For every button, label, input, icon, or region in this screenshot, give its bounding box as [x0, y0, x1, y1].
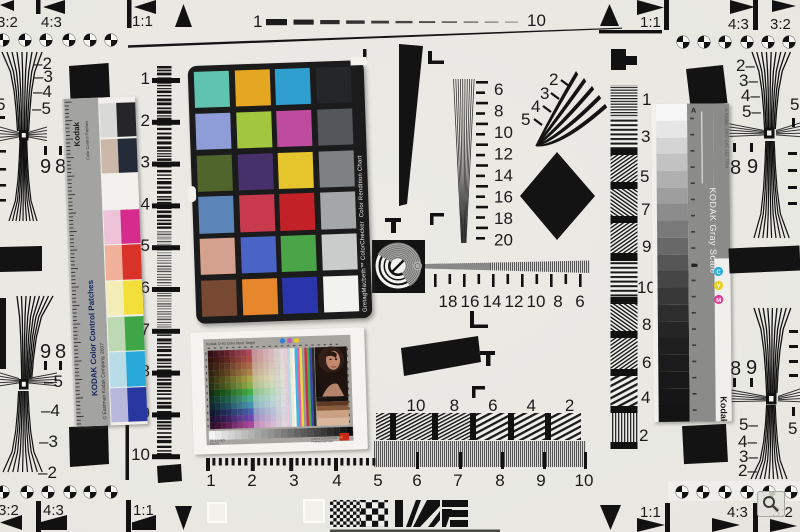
- svg-text:3:2: 3:2: [0, 502, 19, 519]
- svg-text:5: 5: [0, 95, 5, 114]
- svg-text:1: 1: [141, 69, 150, 88]
- svg-text:4: 4: [641, 388, 650, 407]
- svg-text:3: 3: [289, 471, 298, 490]
- svg-text:14: 14: [483, 292, 502, 311]
- svg-text:9: 9: [642, 237, 651, 256]
- svg-text:8: 8: [730, 358, 741, 380]
- svg-text:3: 3: [641, 127, 650, 146]
- svg-text:5–: 5–: [742, 102, 761, 121]
- svg-text:3:2: 3:2: [0, 14, 18, 31]
- svg-text:KODAK Gray Scale: KODAK Gray Scale: [708, 187, 719, 274]
- svg-text:–2: –2: [38, 463, 57, 482]
- svg-text:6: 6: [642, 353, 651, 372]
- svg-text:8: 8: [642, 315, 651, 334]
- svg-text:4: 4: [141, 194, 150, 213]
- svg-text:8: 8: [450, 396, 459, 415]
- svg-text:4: 4: [332, 471, 341, 490]
- svg-text:12: 12: [505, 292, 524, 311]
- svg-text:8: 8: [553, 292, 562, 311]
- svg-text:© Eastman Kodak Company, 2007: © Eastman Kodak Company, 2007: [98, 343, 108, 420]
- svg-text:9: 9: [536, 471, 545, 490]
- svg-text:5: 5: [521, 110, 530, 129]
- svg-text:10: 10: [407, 396, 426, 415]
- svg-text:9: 9: [746, 357, 757, 379]
- svg-text:2: 2: [141, 111, 150, 130]
- svg-text:16: 16: [494, 188, 513, 207]
- svg-text:1:1: 1:1: [133, 502, 154, 519]
- svg-text:5: 5: [788, 419, 797, 438]
- svg-text:M: M: [716, 298, 721, 304]
- svg-text:4: 4: [526, 396, 535, 415]
- svg-text:4:3: 4:3: [727, 504, 748, 521]
- svg-text:9: 9: [747, 156, 758, 178]
- svg-text:1:1: 1:1: [132, 13, 153, 30]
- svg-text:2: 2: [247, 471, 256, 490]
- svg-text:Professional Paper: Professional Paper: [312, 439, 334, 444]
- svg-text:9: 9: [40, 156, 51, 178]
- svg-text:5: 5: [640, 167, 649, 186]
- svg-text:7: 7: [641, 200, 650, 219]
- svg-text:5: 5: [790, 95, 799, 114]
- svg-text:14: 14: [494, 166, 513, 185]
- svg-text:2–: 2–: [738, 461, 757, 480]
- svg-text:–4: –4: [41, 401, 60, 420]
- svg-text:3: 3: [141, 153, 150, 172]
- svg-text:9: 9: [40, 341, 51, 363]
- svg-text:3: 3: [540, 84, 549, 103]
- svg-text:C: C: [716, 270, 721, 276]
- svg-text:16: 16: [461, 292, 480, 311]
- svg-text:20: 20: [494, 231, 513, 250]
- svg-text:4:3: 4:3: [728, 16, 749, 33]
- svg-text:6: 6: [575, 292, 584, 311]
- svg-text:6: 6: [494, 80, 503, 99]
- svg-text:Kodak: Kodak: [719, 396, 729, 422]
- svg-text:K: K: [340, 434, 343, 439]
- svg-text:2: 2: [549, 70, 558, 89]
- svg-text:5: 5: [373, 471, 382, 490]
- svg-text:8: 8: [495, 471, 504, 490]
- svg-text:3:2: 3:2: [770, 16, 791, 33]
- svg-text:1: 1: [206, 471, 215, 490]
- svg-text:–3: –3: [39, 432, 58, 451]
- svg-text:GretagMacbeth™ ColorChecker C: GretagMacbeth™ ColorChecker Color Rendit…: [356, 155, 368, 312]
- svg-text:18: 18: [494, 209, 513, 228]
- svg-text:KODAK Color Control Patches: KODAK Color Control Patches: [86, 279, 99, 396]
- svg-text:5: 5: [141, 236, 150, 255]
- svg-text:6: 6: [488, 396, 497, 415]
- svg-text:–5: –5: [44, 372, 63, 391]
- svg-text:10: 10: [527, 292, 546, 311]
- svg-text:Kodak: Kodak: [72, 121, 82, 146]
- svg-text:7: 7: [453, 471, 462, 490]
- svg-text:2: 2: [639, 426, 648, 445]
- svg-text:6: 6: [412, 471, 421, 490]
- svg-text:10: 10: [131, 445, 150, 464]
- svg-text:2: 2: [565, 396, 574, 415]
- svg-text:10: 10: [527, 11, 546, 30]
- svg-text:–5: –5: [32, 99, 51, 118]
- svg-text:10: 10: [494, 123, 513, 142]
- svg-text:4: 4: [531, 97, 540, 116]
- svg-text:2004:04: 2004:04: [210, 441, 220, 445]
- svg-text:1: 1: [253, 12, 262, 31]
- svg-text:1:1: 1:1: [640, 14, 661, 31]
- svg-text:Color Control Patches: Color Control Patches: [84, 121, 90, 160]
- svg-text:8: 8: [55, 341, 66, 363]
- svg-text:A: A: [691, 108, 696, 115]
- svg-text:12: 12: [494, 145, 513, 164]
- svg-text:4:3: 4:3: [41, 14, 62, 31]
- svg-text:8: 8: [730, 157, 741, 179]
- svg-text:18: 18: [439, 292, 458, 311]
- svg-text:10: 10: [575, 471, 594, 490]
- svg-text:1:1: 1:1: [640, 504, 661, 521]
- svg-text:8: 8: [494, 102, 503, 121]
- svg-text:Y: Y: [717, 284, 721, 290]
- svg-text:4:3: 4:3: [43, 502, 64, 519]
